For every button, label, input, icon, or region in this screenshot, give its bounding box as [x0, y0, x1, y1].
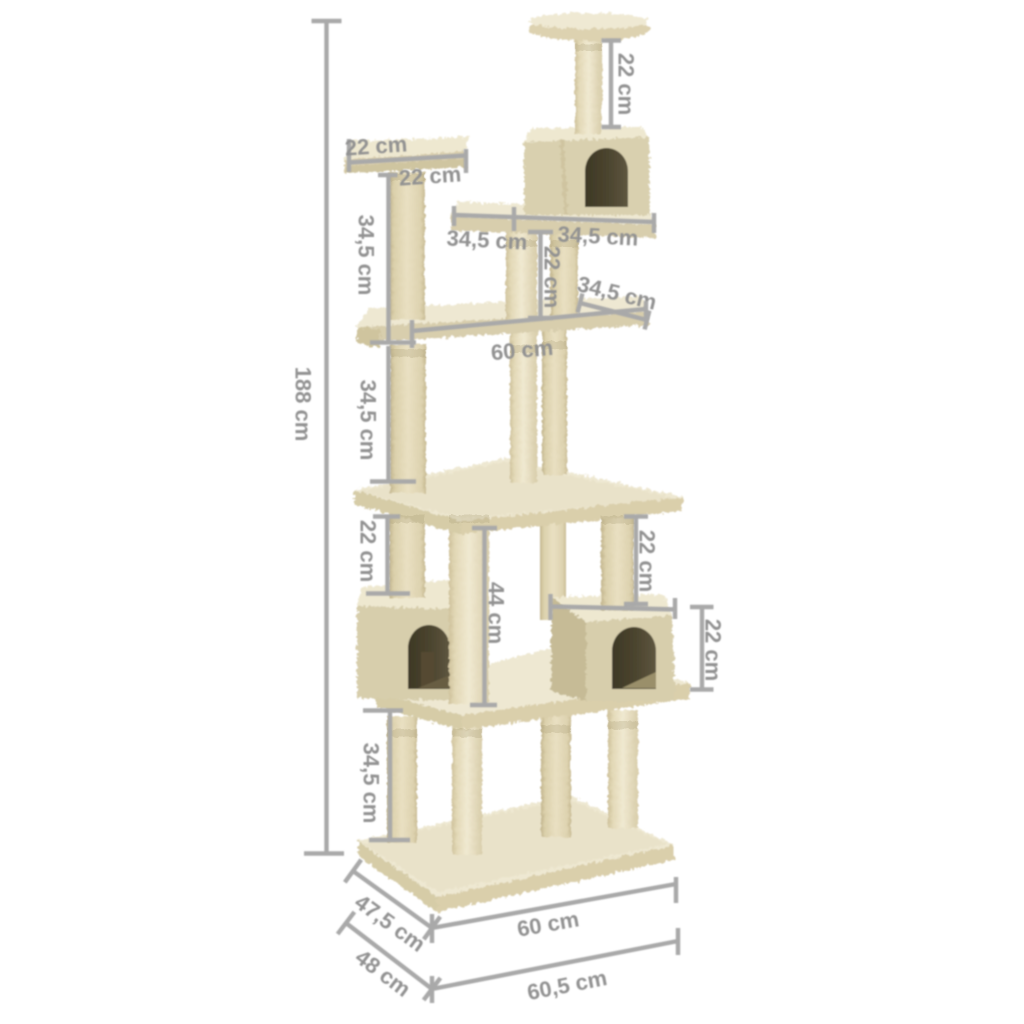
svg-text:188 cm: 188 cm: [291, 367, 316, 442]
svg-text:60,5 cm: 60,5 cm: [525, 965, 609, 1005]
svg-text:34,5 cm: 34,5 cm: [446, 225, 528, 254]
svg-text:34,5 cm: 34,5 cm: [354, 215, 379, 296]
svg-text:34,5 cm: 34,5 cm: [557, 221, 639, 250]
svg-text:34,5 cm: 34,5 cm: [359, 743, 384, 824]
svg-text:22 cm: 22 cm: [540, 246, 565, 308]
svg-text:34,5 cm: 34,5 cm: [356, 380, 381, 461]
svg-text:22 cm: 22 cm: [701, 619, 726, 681]
svg-text:44 cm: 44 cm: [484, 582, 509, 644]
svg-text:22 cm: 22 cm: [614, 53, 639, 115]
svg-text:22 cm: 22 cm: [344, 131, 408, 160]
svg-text:22 cm: 22 cm: [398, 161, 462, 190]
svg-text:22 cm: 22 cm: [356, 520, 381, 582]
svg-text:22 cm: 22 cm: [635, 530, 660, 592]
